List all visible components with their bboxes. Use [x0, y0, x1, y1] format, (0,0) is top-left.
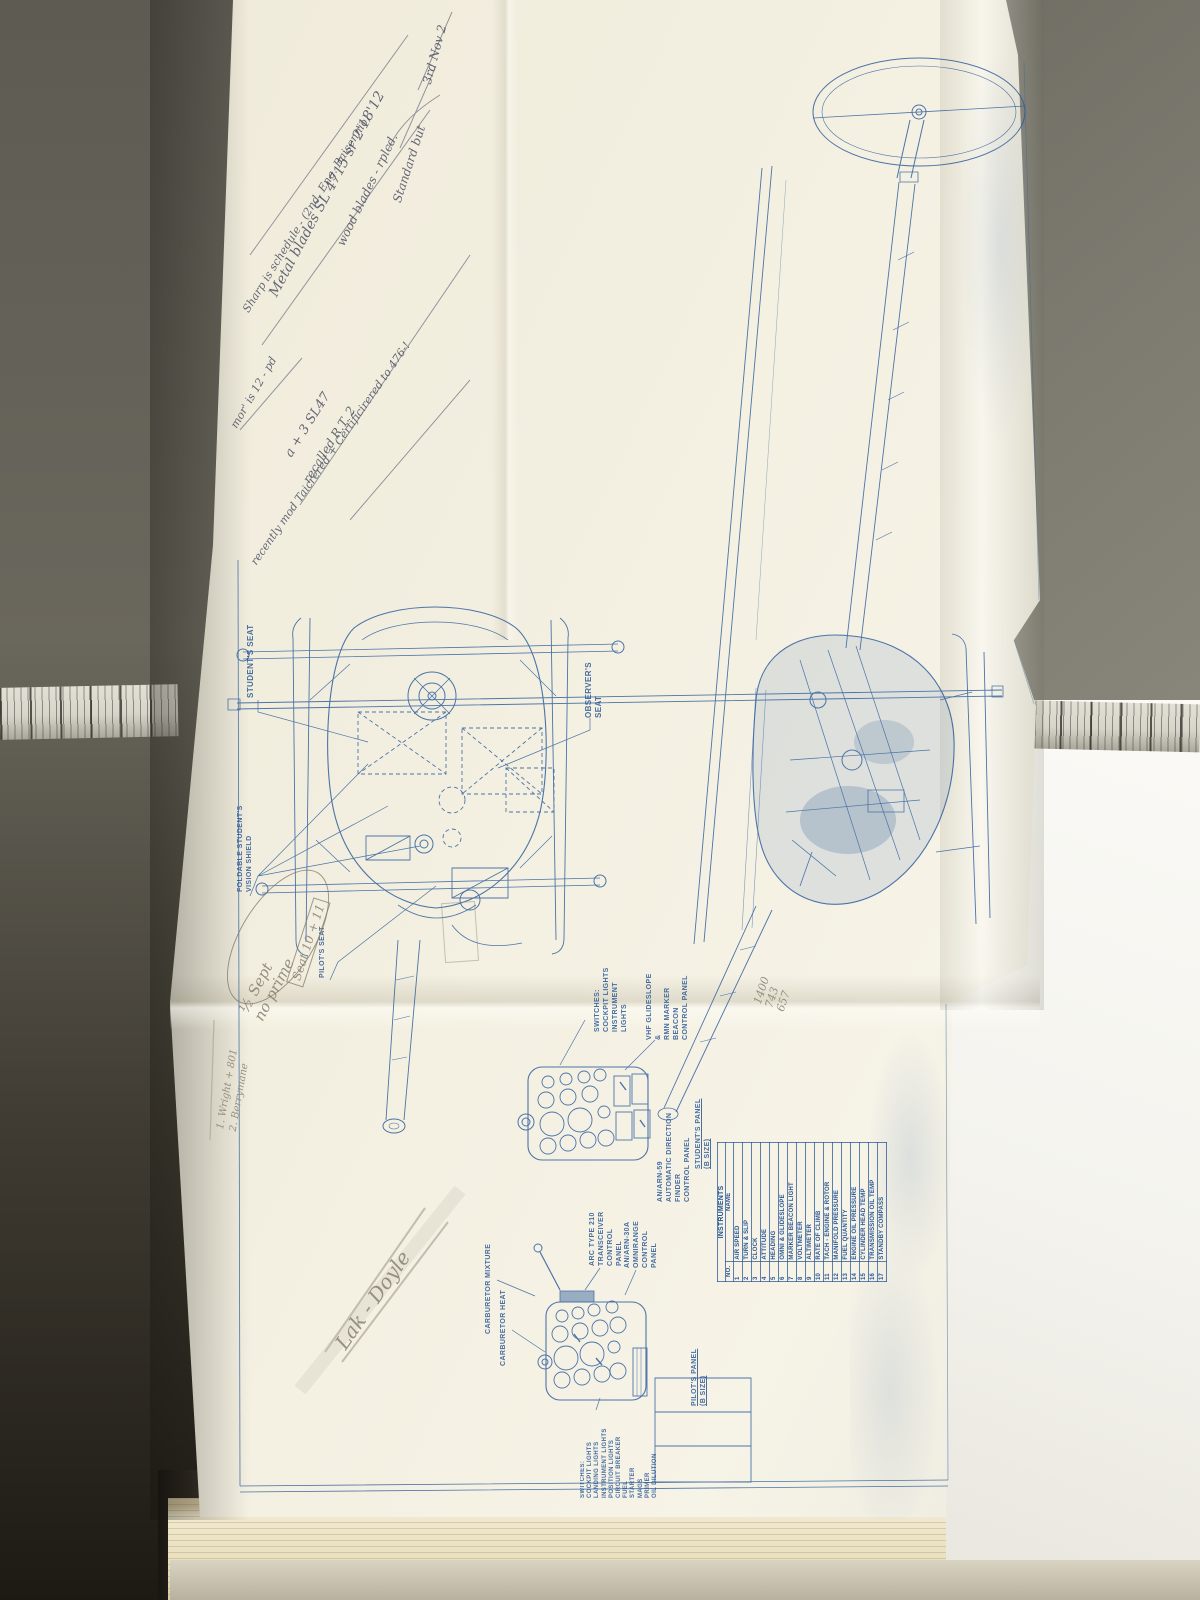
- paper-edge-shadow: [150, 0, 250, 1520]
- label-foldable-shield: FOLDABLE STUDENT'S VISION SHIELD: [236, 800, 258, 892]
- instruments-table-row: 14ENGINE OIL PRESSURE: [851, 1143, 860, 1282]
- label-carb-mixture: CARBURETOR MIXTURE: [484, 1222, 495, 1334]
- label-pilots-panel: PILOT'S PANEL (B SIZE): [690, 1342, 710, 1406]
- instruments-table-title: INSTRUMENTS: [718, 1143, 726, 1282]
- label-students-seat: STUDENT'S SEAT: [246, 622, 258, 698]
- instruments-table-row: 16TRANSMISSION OIL TEMP: [869, 1143, 878, 1282]
- note-sept: ½ Sept no prime: [236, 948, 298, 1024]
- blueprint-paper: [0, 0, 1200, 1600]
- ruler-right: [999, 700, 1200, 753]
- label-switches-pilot: SWITCHES: COCKPIT LIGHTS LANDING LIGHTS …: [580, 1408, 660, 1498]
- photo-scene: STUDENT'S SEAT OBSERVER'S SEAT FOLDABLE …: [0, 0, 1200, 1600]
- floor-surface: [930, 700, 1200, 1600]
- fold-shading-right: [940, 0, 1044, 1010]
- instruments-table: INSTRUMENTS NO. NAME 1AIR SPEED2TURN & S…: [717, 1142, 887, 1282]
- instruments-table-row: 8VOLTMETER: [797, 1143, 806, 1282]
- instruments-table-row: 13FUEL QUANTITY: [842, 1143, 851, 1282]
- instruments-table-row: 9ALTIMETER: [806, 1143, 815, 1282]
- note-lak-doyle: Lak - Doyle: [330, 1246, 415, 1353]
- label-omnirange-panel: AN/ARN-30A OMNIRANGE CONTROL PANEL: [623, 1210, 651, 1268]
- instruments-table-row: 15CYLINDER HEAD TEMP: [860, 1143, 869, 1282]
- ruler-left: [0, 684, 179, 740]
- instruments-table-row: 10RATE OF CLIMB: [815, 1143, 824, 1282]
- instruments-table-row: 7MARKER BEACON LIGHT: [788, 1143, 797, 1282]
- blue-print-wash-top: [950, 0, 1040, 700]
- instruments-table-row: 11TACH - ENGINE & ROTOR: [824, 1143, 833, 1282]
- label-observers-seat: OBSERVER'S SEAT: [584, 640, 596, 718]
- label-arc-panel: ARC TYPE 210 TRANSCEIVER CONTROL PANEL: [588, 1206, 616, 1266]
- background-wall-left: [0, 0, 245, 1600]
- floor-shadow: [170, 1560, 1200, 1600]
- blueprint-drawing: [0, 0, 1200, 1600]
- instruments-table-row: 12MANIFOLD PRESSURE: [833, 1143, 842, 1282]
- label-carb-heat: CARBURETOR HEAT: [499, 1266, 510, 1366]
- instruments-table-row: 2TURN & SLIP: [743, 1143, 752, 1282]
- note-nov: 3rd Nov 2: [420, 23, 449, 85]
- instruments-table-row: 4ATTITUDE: [761, 1143, 770, 1282]
- background-wall: [0, 0, 1200, 780]
- instruments-col-no: NO.: [726, 1261, 734, 1281]
- label-adf-panel: AN/ARN-59 AUTOMATIC DIRECTION FINDER CON…: [656, 1096, 684, 1202]
- instruments-table-row: 1AIR SPEED: [734, 1143, 743, 1282]
- instruments-table-row: 17STANDBY COMPASS: [878, 1143, 887, 1282]
- label-students-panel: STUDENT'S PANEL (B SIZE): [694, 1075, 714, 1169]
- note-faint-box: [441, 901, 479, 963]
- instruments-table-body: 1AIR SPEED2TURN & SLIP3CLOCK4ATTITUDE5HE…: [734, 1143, 887, 1282]
- instruments-col-name: NAME: [726, 1143, 734, 1262]
- note-names: 1. Wright + 801 2. Berrymane: [214, 1048, 254, 1132]
- fold-crease-vertical: [492, 0, 518, 640]
- instruments-table-row: 6OMNI & GLIDESLOPE: [779, 1143, 788, 1282]
- label-switches-student: SWITCHES: COCKPIT LIGHTS INSTRUMENT LIGH…: [593, 966, 621, 1032]
- instruments-table-row: 3CLOCK: [752, 1143, 761, 1282]
- note-calc: 1400 743 657: [752, 975, 795, 1013]
- label-glideslope-panel: VHF GLIDESLOPE & RMN MARKER BEACON CONTR…: [645, 968, 673, 1040]
- book-page-edges: [168, 1498, 946, 1600]
- instruments-table-row: 5HEADING: [770, 1143, 779, 1282]
- book-spine: [158, 1470, 208, 1600]
- note-mor: mor' is 12 - pd: [228, 354, 279, 430]
